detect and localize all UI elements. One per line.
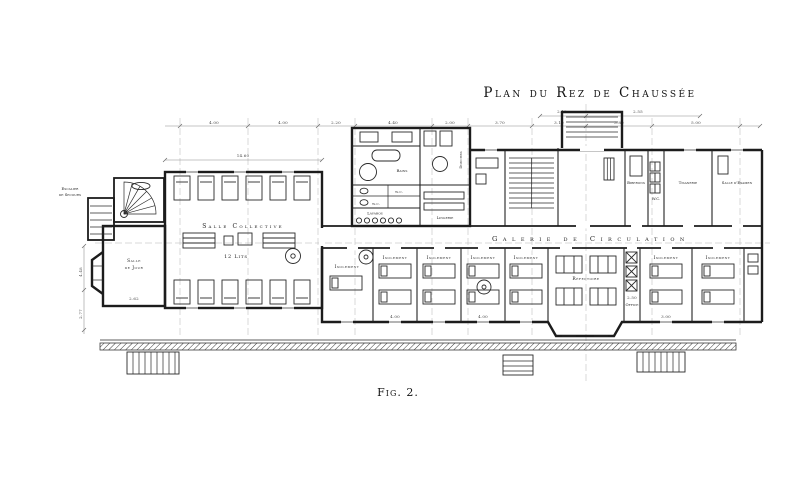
room-label-biberons: Biberons: [627, 180, 645, 185]
room-label-escalier-2: de Secours: [59, 192, 81, 197]
salle-de-jour: Salle de Jour 2.62: [92, 226, 165, 306]
dumbwaiter-shaft: [626, 252, 637, 291]
stove-icon: [286, 249, 301, 264]
ward-salle-collective: Salle Collective 12 Lits: [165, 170, 325, 310]
room-label-isolement: Isolement: [427, 256, 452, 261]
dim-label: 2.00: [445, 120, 455, 125]
dim-label: 4.00: [478, 314, 488, 319]
dim-label: 2.62: [129, 296, 139, 301]
room-label-isolement: Isolement: [383, 256, 408, 261]
dim-label: 4.48: [78, 267, 83, 277]
dim-label: 4.00: [390, 314, 400, 319]
dim-label: 2.55: [633, 109, 643, 114]
floor-plan-drawing: 4.00 4.00 2.20 4.40 2.00 3.70 3.10 3.80 …: [0, 0, 800, 491]
dim-label: 2.77: [78, 309, 83, 319]
terrace-center-steps: [503, 355, 533, 375]
dim-label: 4.00: [278, 120, 288, 125]
dim-label: 5.00: [691, 120, 701, 125]
north-rooms: Biberons W.C. Tisanerie Salle d'Examen: [485, 148, 753, 226]
ward-windows: [186, 170, 325, 310]
dim-label: 4.40: [388, 120, 398, 125]
dim-label: 14.60: [237, 153, 250, 158]
room-label-office: Office: [626, 302, 639, 307]
scanned-page: 4.00 4.00 2.20 4.40 2.00 3.70 3.10 3.80 …: [0, 0, 800, 491]
room-label-lingerie: Lingerie: [437, 215, 454, 220]
room-label-salle-examen: Salle d'Examen: [722, 180, 753, 185]
flue-shaft: [650, 162, 660, 193]
room-label-salle-de-jour-2: de Jour: [125, 266, 144, 271]
galerie-corridor: Galerie de Circulation: [322, 224, 762, 251]
room-label-isolement: Isolement: [706, 256, 731, 261]
room-label-isolement: Isolement: [654, 256, 679, 261]
room-label-12-lits: 12 Lits: [224, 254, 248, 260]
room-label-isolement: Isolement: [514, 256, 539, 261]
room-label-isolement: Isolement: [471, 256, 496, 261]
dim-label: 4.00: [209, 120, 219, 125]
room-label-wc-b: w.c.: [372, 201, 380, 206]
south-rooms: Isolement Isolement Isolement Isolement …: [322, 248, 762, 336]
ward-tables: [183, 233, 295, 248]
room-label-salle-de-jour: Salle: [127, 259, 141, 264]
room-label-douches: Douches: [458, 151, 463, 168]
room-label-wc: w.c.: [395, 189, 403, 194]
room-label-wc2: W.C.: [652, 196, 660, 201]
terrace: [100, 340, 736, 375]
entrance-steps: [566, 117, 618, 137]
figure-caption: Fig. 2.: [377, 386, 419, 399]
main-stair-treads: [509, 158, 554, 208]
bed-row-top: [174, 176, 310, 200]
dim-label: 3.70: [495, 120, 505, 125]
spiral-staircase: [114, 178, 164, 222]
room-label-tisanerie: Tisanerie: [679, 180, 697, 185]
bed-row-bottom: [174, 280, 310, 304]
page-title: Plan du Rez de Chaussée: [483, 85, 696, 101]
room-label-escalier: Escalier: [62, 186, 80, 191]
dim-label: 2.20: [331, 120, 341, 125]
dim-label: 2.50: [627, 295, 637, 300]
room-label-salle-collective: Salle Collective: [202, 223, 284, 230]
room-label-isolement: Isolement: [335, 265, 360, 270]
terrace-stairs-left: [127, 352, 179, 374]
terrace-stairs-right: [637, 352, 685, 372]
room-label-bains: Bains: [397, 168, 408, 173]
service-block: Bains w.c. w.c. Lavabos Douches Lingerie: [352, 128, 470, 226]
escalier-de-secours: Escalier de Secours: [59, 186, 114, 240]
dim-label: 3.00: [661, 314, 671, 319]
room-label-refectoire: Réfectoire: [572, 276, 599, 282]
corridor-label-galerie: Galerie de Circulation: [492, 235, 690, 243]
room-label-lavabos: Lavabos: [367, 211, 382, 216]
